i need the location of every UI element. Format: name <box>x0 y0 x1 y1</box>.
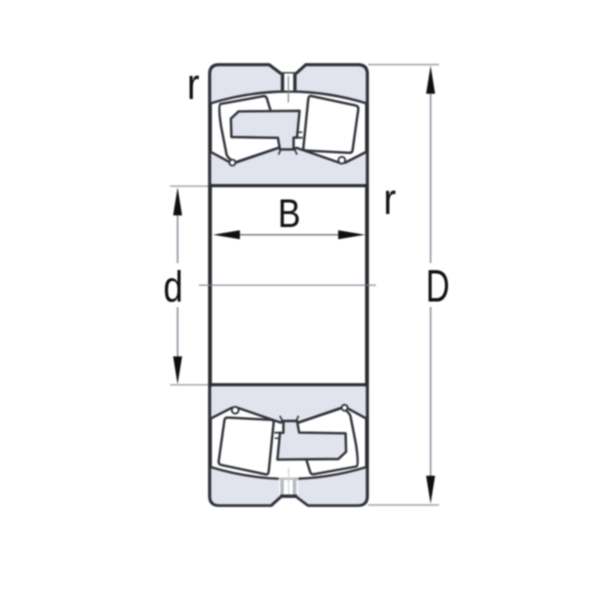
svg-text:D: D <box>426 262 450 312</box>
svg-text:r: r <box>187 59 199 109</box>
svg-text:r: r <box>383 174 395 224</box>
svg-text:B: B <box>278 190 301 235</box>
svg-text:d: d <box>163 263 183 312</box>
